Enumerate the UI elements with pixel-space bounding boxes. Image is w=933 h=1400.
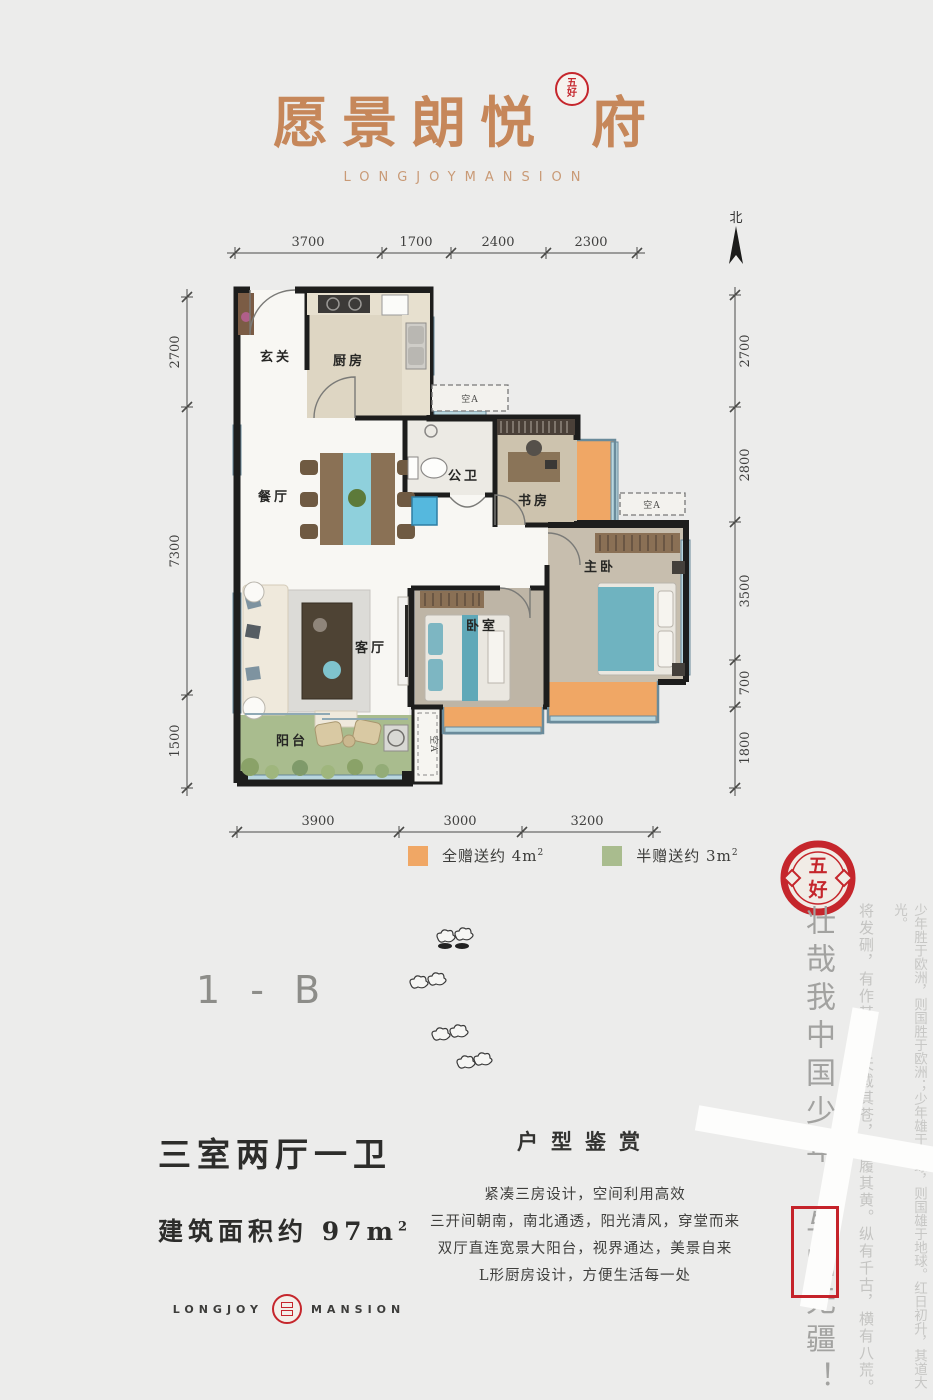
ac-label-top: 空A [461, 393, 479, 405]
unit-summary: 三室两厅一卫 建筑面积约 97m2 LONGJOY MANSION [158, 1128, 420, 1324]
ac-label-right: 空A [643, 499, 661, 511]
dim-top-4: 2300 [574, 235, 607, 250]
dim-right-4: 700 [738, 671, 753, 696]
footer-logo-right: MANSION [311, 1303, 405, 1316]
brand-seal-char-bottom: 好 [567, 89, 577, 99]
legend-item-full-gift: 全赠送约 4m2 [408, 845, 544, 866]
room-entry-label: 玄关 [260, 349, 292, 365]
cloud-icon [410, 928, 492, 1068]
appreciation-lines: 紧凑三房设计，空间利用高效 三开间朝南，南北通透，阳光清风，穿堂而来 双厅直连宽… [400, 1182, 770, 1290]
entry-cabinet [238, 293, 254, 335]
dim-bottom-3: 3200 [570, 814, 603, 829]
appreciation-line-1: 紧凑三房设计，空间利用高效 [400, 1182, 770, 1209]
dim-right-2: 2800 [738, 448, 753, 481]
room-balcony-label: 阳台 [276, 733, 308, 749]
appreciation-line-3: 双厅直连宽景大阳台，视界通达，美景自来 [400, 1236, 770, 1263]
brand-title-post: 府 [591, 78, 660, 158]
dim-bottom-2: 3000 [443, 814, 476, 829]
dim-left-3: 1500 [168, 724, 183, 757]
cloud-doodles [402, 920, 512, 1080]
appreciation-title: 户型鉴赏 [400, 1126, 770, 1156]
room-master-label: 主卧 [584, 559, 616, 575]
brand-subtitle: LONGJOYMANSION [0, 170, 933, 185]
dining-table [300, 453, 415, 545]
dim-bottom-1: 3900 [301, 814, 334, 829]
room-bath-label: 公卫 [448, 469, 480, 484]
unit-area: 建筑面积约 97m2 [158, 1212, 420, 1248]
brand-header: 愿景朗悦 五 好 府 LONGJOYMANSION [0, 78, 933, 185]
footer-seal-icon [272, 1294, 302, 1324]
appreciation-line-4: L形厨房设计，方便生活每一处 [400, 1263, 770, 1290]
dim-top-2: 1700 [399, 235, 432, 250]
room-living-label: 客厅 [355, 640, 387, 656]
legend-item-half-gift: 半赠送约 3m2 [602, 845, 738, 866]
dim-top-3: 2400 [481, 235, 514, 250]
poem-column-inner: 将发硎，有作其芒。天戴其苍，地履其黄。纵有千古，横有八荒。 [856, 903, 877, 1400]
brand-title-pre: 愿景朗悦 [273, 78, 549, 158]
dim-right-1: 2700 [738, 334, 753, 367]
dim-top-1: 3700 [291, 235, 324, 250]
seal-char-bottom: 好 [807, 878, 827, 901]
footer-logo: LONGJOY MANSION [158, 1294, 420, 1324]
poem-column-outer: 少年胜于欧洲，则国胜于欧洲；少年雄于地球，则国雄于地球。红日初升，其道大光。 [889, 903, 929, 1400]
room-study-label: 书房 [518, 493, 550, 509]
appreciation-line-2: 三开间朝南，南北通透，阳光清风，穿堂而来 [400, 1209, 770, 1236]
room-bedroom-label: 卧室 [466, 618, 498, 634]
floor-plan: 空A 空A 空A [150, 205, 780, 905]
unit-layout: 三室两厅一卫 [158, 1128, 420, 1176]
brand-seal-icon: 五 好 [555, 72, 589, 106]
dim-right-3: 3500 [738, 574, 753, 607]
legend-swatch-full-gift [408, 846, 428, 866]
dim-left-1: 2700 [168, 335, 183, 368]
legend-label-full-gift: 全赠送约 4m2 [442, 845, 544, 866]
unit-code: 1 - B [196, 968, 329, 1012]
dim-right-5: 1800 [738, 731, 753, 764]
dim-left-2: 7300 [168, 534, 183, 567]
poem-column-large: 壮哉我中国少年，与国无疆！ [795, 905, 839, 1400]
gift-area-legend: 全赠送约 4m2 半赠送约 3m2 [408, 845, 739, 866]
ac-label-shaft: 空A [428, 735, 440, 753]
footer-logo-left: LONGJOY [173, 1303, 263, 1316]
legend-label-half-gift: 半赠送约 3m2 [636, 845, 738, 866]
poster: 愿景朗悦 五 好 府 LONGJOYMANSION 北 [0, 0, 933, 1400]
room-dining-label: 餐厅 [257, 489, 290, 505]
room-kitchen-label: 厨房 [333, 353, 365, 369]
brand-title-line: 愿景朗悦 五 好 府 [273, 78, 660, 158]
seal-char-top: 五 [808, 855, 827, 877]
layout-appreciation: 户型鉴赏 紧凑三房设计，空间利用高效 三开间朝南，南北通透，阳光清风，穿堂而来 … [400, 1126, 770, 1290]
legend-swatch-half-gift [602, 846, 622, 866]
poem-highlight-box [791, 1206, 839, 1298]
